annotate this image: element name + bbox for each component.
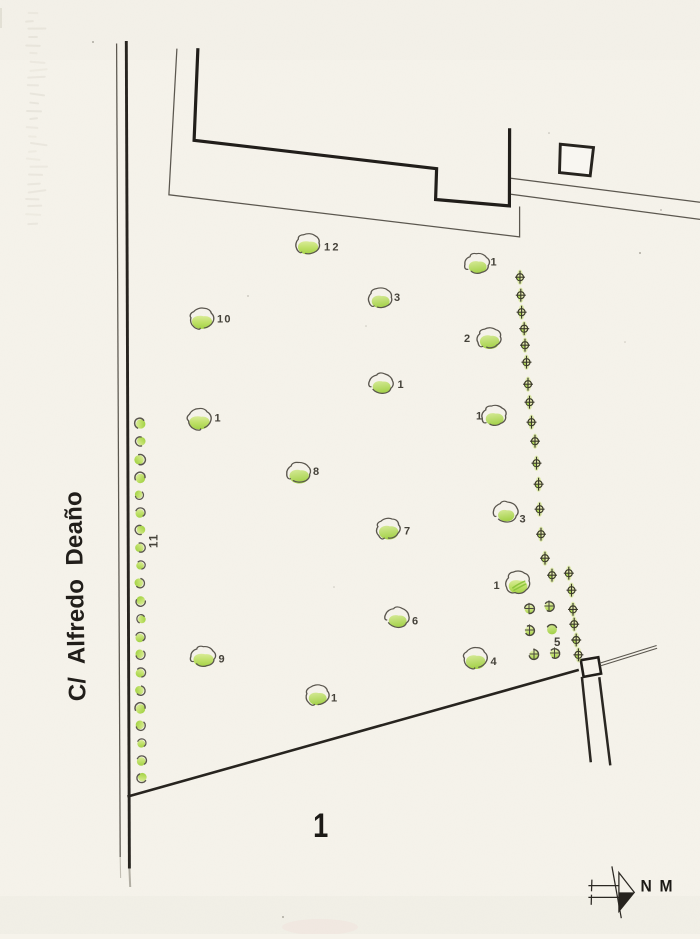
svg-text:12: 12 bbox=[324, 241, 341, 253]
svg-text:3: 3 bbox=[394, 292, 401, 304]
svg-text:1: 1 bbox=[494, 580, 501, 592]
svg-text:5: 5 bbox=[554, 637, 561, 649]
svg-text:1: 1 bbox=[215, 413, 222, 425]
svg-text:11: 11 bbox=[149, 533, 161, 548]
svg-text:10: 10 bbox=[217, 313, 232, 325]
svg-text:1: 1 bbox=[476, 410, 483, 422]
svg-text:4: 4 bbox=[491, 656, 498, 668]
svg-text:3: 3 bbox=[520, 514, 527, 526]
svg-text:2: 2 bbox=[464, 333, 471, 345]
svg-text:C/ Alfredo Deaño: C/ Alfredo Deaño bbox=[60, 491, 91, 702]
svg-text:1: 1 bbox=[331, 692, 338, 704]
svg-text:9: 9 bbox=[219, 653, 226, 665]
svg-text:1: 1 bbox=[313, 806, 328, 845]
svg-text:8: 8 bbox=[313, 466, 320, 478]
svg-text:1: 1 bbox=[398, 379, 405, 391]
svg-text:6: 6 bbox=[412, 616, 419, 628]
svg-text:7: 7 bbox=[404, 525, 411, 537]
svg-text:N M: N M bbox=[641, 877, 675, 896]
svg-text:1: 1 bbox=[491, 256, 498, 268]
